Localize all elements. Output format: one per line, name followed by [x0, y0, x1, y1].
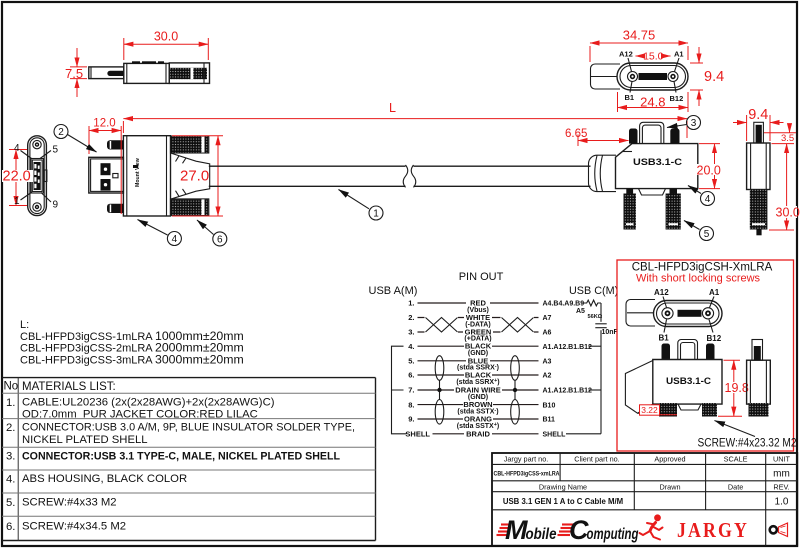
svg-text:19.8: 19.8 [725, 381, 749, 395]
svg-text:No: No [4, 381, 19, 393]
svg-text:SCREW:#4x33 M2: SCREW:#4x33 M2 [22, 497, 117, 509]
svg-text:USB3.1-C: USB3.1-C [633, 157, 683, 167]
svg-text:UNIT: UNIT [773, 455, 791, 464]
svg-text:2: 2 [58, 127, 64, 138]
svg-text:34.75: 34.75 [623, 28, 656, 43]
svg-text:10nF: 10nF [602, 329, 619, 336]
svg-text:Mount View: Mount View [135, 157, 141, 187]
svg-text:NICKEL PLATED SHELL: NICKEL PLATED SHELL [22, 434, 148, 446]
svg-text:15.0: 15.0 [643, 51, 664, 63]
svg-text:USB C(M): USB C(M) [569, 285, 618, 297]
svg-text:A5: A5 [576, 308, 585, 315]
svg-text:27.0: 27.0 [180, 168, 209, 185]
svg-text:3: 3 [691, 118, 697, 129]
svg-text:JARGY: JARGY [677, 518, 749, 542]
svg-text:5: 5 [53, 145, 59, 156]
svg-text:Client part no.: Client part no. [574, 455, 619, 464]
svg-text:MATERIALS LIST:: MATERIALS LIST: [22, 381, 116, 393]
svg-text:A12: A12 [654, 288, 669, 297]
svg-text:3.22: 3.22 [641, 405, 658, 415]
svg-text:A7: A7 [543, 315, 552, 322]
svg-text:12.0: 12.0 [93, 118, 115, 130]
svg-text:6.: 6. [408, 371, 414, 380]
svg-text:4: 4 [705, 194, 711, 205]
svg-text:24.8: 24.8 [640, 95, 665, 110]
svg-text:6.: 6. [6, 521, 15, 533]
svg-text:Jargy part no.: Jargy part no. [504, 455, 549, 464]
svg-text:3.: 3. [6, 451, 15, 463]
svg-text:BRAID: BRAID [466, 429, 490, 438]
svg-text:1.: 1. [408, 299, 414, 308]
svg-text:A1: A1 [674, 50, 684, 59]
svg-text:SHELL: SHELL [543, 431, 567, 438]
svg-text:9.4: 9.4 [704, 69, 724, 85]
svg-text:A1.A12.B1.B12: A1.A12.B1.B12 [543, 344, 593, 351]
svg-text:1: 1 [14, 196, 20, 207]
svg-text:Date: Date [728, 482, 743, 491]
svg-text:B1: B1 [659, 334, 670, 343]
svg-text:CBL-HFPD3igCSS-xmLRA: CBL-HFPD3igCSS-xmLRA [494, 471, 560, 478]
svg-text:A3: A3 [543, 359, 552, 366]
svg-text:20.0: 20.0 [697, 164, 721, 178]
svg-text:L: L [389, 101, 396, 115]
svg-text:USB3.1-C: USB3.1-C [666, 376, 712, 386]
svg-text:A6: A6 [543, 330, 552, 337]
svg-text:USB 3.1 GEN 1 A to C Cable M/M: USB 3.1 GEN 1 A to C Cable M/M [503, 497, 623, 506]
svg-text:9.4: 9.4 [748, 107, 768, 123]
svg-text:1.0: 1.0 [775, 497, 789, 508]
svg-text:B1: B1 [625, 93, 635, 102]
svg-text:7.5: 7.5 [65, 66, 83, 81]
svg-text:4.: 4. [6, 474, 15, 486]
svg-text:4: 4 [172, 234, 178, 245]
svg-text:6: 6 [217, 234, 223, 245]
svg-text:B12: B12 [707, 334, 722, 343]
svg-text:5.: 5. [408, 357, 414, 366]
svg-text:CBL-HFPD3igCSS-3mLRA: CBL-HFPD3igCSS-3mLRA [20, 354, 153, 366]
svg-text:Drawing Name: Drawing Name [539, 482, 587, 491]
svg-text:B11: B11 [543, 417, 556, 424]
svg-text:4.: 4. [408, 342, 414, 351]
svg-text:OD:7.0mm PUR JACKET COLOR:RED: OD:7.0mm PUR JACKET COLOR:RED LILAC [22, 409, 258, 421]
svg-text:B10: B10 [543, 402, 556, 409]
svg-text:SCREW:#4x23.32 M2: SCREW:#4x23.32 M2 [698, 436, 797, 450]
svg-text:B12: B12 [670, 94, 684, 103]
svg-text:A2: A2 [543, 373, 552, 380]
svg-text:3.: 3. [408, 328, 414, 337]
svg-text:1.: 1. [6, 397, 15, 409]
svg-text:SHELL: SHELL [405, 430, 430, 439]
svg-text:6.65: 6.65 [565, 128, 587, 140]
svg-text:1: 1 [373, 209, 379, 220]
svg-text:5: 5 [704, 229, 710, 240]
svg-text:A4.B4.A9.B9: A4.B4.A9.B9 [543, 301, 585, 308]
svg-text:3.5: 3.5 [781, 133, 794, 144]
svg-text:7.: 7. [408, 386, 414, 395]
svg-text:30.0: 30.0 [154, 30, 178, 44]
svg-text:CBL-HFPD3igCSS-2mLRA: CBL-HFPD3igCSS-2mLRA [20, 343, 153, 355]
svg-text:CBL-HFPD3igCSS-1mLRA: CBL-HFPD3igCSS-1mLRA [20, 331, 153, 343]
svg-text:PIN OUT: PIN OUT [459, 271, 504, 283]
svg-text:4: 4 [14, 143, 20, 154]
svg-text:mm: mm [773, 469, 790, 480]
svg-text:8.: 8. [408, 400, 414, 409]
svg-text:CONNECTOR:USB 3.0 A/M, 9P, BLU: CONNECTOR:USB 3.0 A/M, 9P, BLUE INSULATO… [22, 422, 355, 434]
svg-text:ABS HOUSING, BLACK COLOR: ABS HOUSING, BLACK COLOR [22, 473, 187, 485]
svg-text:A12: A12 [619, 50, 633, 59]
svg-text:9: 9 [53, 200, 59, 211]
svg-text:REV.: REV. [773, 482, 789, 491]
svg-text:2.: 2. [6, 422, 15, 434]
svg-text:SCALE: SCALE [724, 455, 748, 464]
svg-text:A1: A1 [709, 288, 720, 297]
svg-text:Drawn: Drawn [659, 482, 680, 491]
svg-text:5.: 5. [6, 497, 15, 509]
svg-text:3000mm±20mm: 3000mm±20mm [155, 352, 244, 366]
svg-text:30.0: 30.0 [776, 206, 800, 220]
svg-text:USB A(M): USB A(M) [369, 285, 418, 297]
svg-text:9.: 9. [408, 415, 414, 424]
svg-text:CABLE:UL20236 (2x(2x28AWG)+2x(: CABLE:UL20236 (2x(2x28AWG)+2x(2x28AWG)C) [22, 397, 275, 409]
svg-text:A1.A12.B1.B12: A1.A12.B1.B12 [543, 388, 593, 395]
svg-text:SCREW:#4x34.5 M2: SCREW:#4x34.5 M2 [22, 521, 126, 533]
svg-text:Approved: Approved [654, 454, 685, 463]
svg-text:2.: 2. [408, 313, 414, 322]
svg-text:CONNECTOR:USB 3.1 TYPE-C, MALE: CONNECTOR:USB 3.1 TYPE-C, MALE, NICKEL P… [22, 451, 340, 463]
svg-text:22.0: 22.0 [3, 169, 31, 185]
svg-text:With short locking screws: With short locking screws [636, 273, 761, 285]
svg-text:L:: L: [20, 319, 29, 331]
svg-text:56KΩ: 56KΩ [588, 314, 603, 320]
